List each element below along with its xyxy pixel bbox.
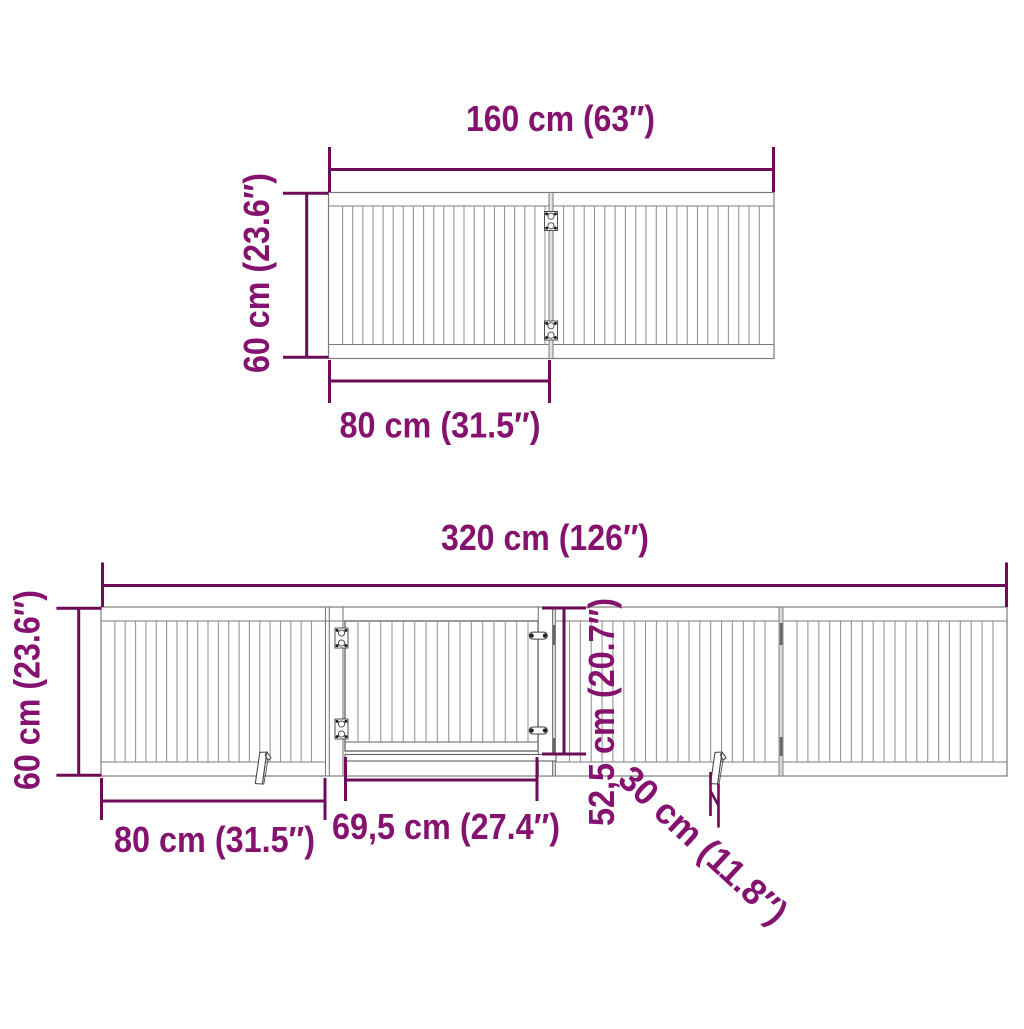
- svg-text:69,5 cm (27.4″): 69,5 cm (27.4″): [332, 806, 560, 847]
- svg-text:80 cm (31.5″): 80 cm (31.5″): [114, 819, 315, 860]
- svg-text:60 cm (23.6″): 60 cm (23.6″): [236, 173, 277, 373]
- svg-text:80 cm (31.5″): 80 cm (31.5″): [340, 405, 541, 446]
- svg-text:60 cm (23.6″): 60 cm (23.6″): [7, 590, 48, 790]
- svg-text:320 cm (126″): 320 cm (126″): [441, 517, 649, 558]
- svg-text:160 cm (63″): 160 cm (63″): [466, 98, 655, 139]
- svg-text:30 cm (11.8″): 30 cm (11.8″): [611, 757, 796, 932]
